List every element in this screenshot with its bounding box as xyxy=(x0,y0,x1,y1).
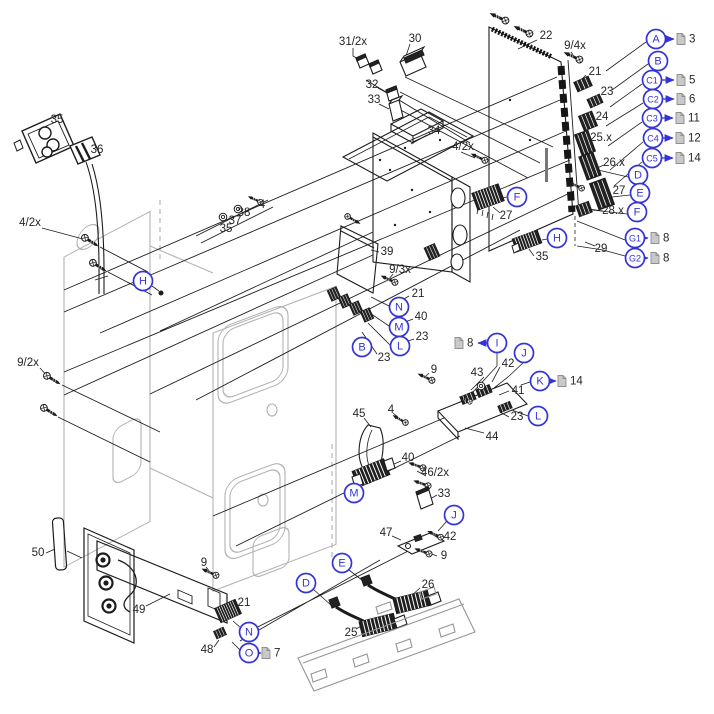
part-label-9-2x: 9/2x xyxy=(17,357,39,369)
part-label-4-2x: 4/2x xyxy=(19,217,41,229)
document-icon xyxy=(677,94,685,105)
callout-e[interactable]: E xyxy=(631,184,650,203)
callout-k[interactable]: K xyxy=(531,372,550,391)
callout-c4[interactable]: C4 xyxy=(644,129,663,148)
part-label-39: 39 xyxy=(381,246,394,258)
doc-page-number: 6 xyxy=(689,94,695,106)
callout-letter: N xyxy=(245,627,253,639)
callout-g1[interactable]: G1 xyxy=(626,229,645,248)
strip-50 xyxy=(52,518,67,571)
part-label-25: 25 xyxy=(345,627,358,639)
doc-page-number: 14 xyxy=(688,153,701,165)
callout-letter: A xyxy=(652,34,660,46)
doc-ref-page-11[interactable]: 11 xyxy=(662,113,700,125)
document-icon xyxy=(676,133,684,144)
doc-page-number: 8 xyxy=(663,233,669,245)
callout-letter: L xyxy=(397,341,403,353)
sensor-47-group xyxy=(398,529,444,558)
part-label-43: 43 xyxy=(471,367,484,379)
document-icon xyxy=(651,253,659,264)
doc-page-number: 8 xyxy=(467,338,473,350)
screw-9-2x-a xyxy=(42,371,62,387)
connector-21 xyxy=(574,76,592,91)
washer-42 xyxy=(477,382,485,390)
screw-9-2x-b xyxy=(39,403,59,419)
callout-c5[interactable]: C5 xyxy=(643,149,662,168)
part-label-27: 27 xyxy=(613,185,626,197)
part-label-26-x: 26.x xyxy=(603,157,625,169)
callout-m[interactable]: M xyxy=(390,318,409,337)
exploded-parts-diagram: 31/2x303233229/4x21232425.x26.x2728.x293… xyxy=(0,0,714,714)
part-label-23: 23 xyxy=(601,86,614,98)
callout-letter: J xyxy=(451,510,457,522)
part-label-24: 24 xyxy=(596,111,609,123)
callout-c1[interactable]: C1 xyxy=(643,71,662,90)
part-label-49: 49 xyxy=(133,604,146,616)
callout-m[interactable]: M xyxy=(345,484,364,503)
doc-page-number: 14 xyxy=(570,376,583,388)
part-label-9: 9 xyxy=(201,557,207,569)
electronics-box xyxy=(373,133,470,282)
callout-e[interactable]: E xyxy=(333,554,352,573)
doc-ref-page-5[interactable]: 5 xyxy=(662,75,695,87)
callout-d[interactable]: D xyxy=(297,574,316,593)
callout-letter: C5 xyxy=(646,154,658,164)
callout-letter: M xyxy=(394,322,403,334)
chassis-frame xyxy=(64,193,336,594)
doc-ref-page-8[interactable]: 8 xyxy=(645,253,669,265)
part-label-46-2x: 46/2x xyxy=(421,467,449,479)
part-label-21: 21 xyxy=(589,66,602,78)
part-label-48: 48 xyxy=(201,644,214,656)
callout-letter: C2 xyxy=(647,95,659,105)
callout-l[interactable]: L xyxy=(391,337,410,356)
callout-letter: B xyxy=(654,56,661,68)
doc-page-number: 3 xyxy=(689,34,695,46)
callout-a[interactable]: A xyxy=(647,30,666,49)
part-label-23: 23 xyxy=(511,411,524,423)
document-icon xyxy=(676,113,684,124)
callout-b[interactable]: B xyxy=(649,52,668,71)
doc-ref-page-8[interactable]: 8 xyxy=(455,338,488,350)
doc-ref-page-6[interactable]: 6 xyxy=(663,94,695,106)
part-label-27: 27 xyxy=(500,210,513,222)
connector-26x xyxy=(579,153,601,180)
doc-ref-page-14[interactable]: 14 xyxy=(662,153,701,165)
screw-22b xyxy=(514,24,534,38)
callout-letter: M xyxy=(349,488,358,500)
callout-letter: E xyxy=(338,558,345,570)
callout-letter: C4 xyxy=(647,134,659,144)
part-label-33: 33 xyxy=(438,488,451,500)
callout-letter: K xyxy=(536,376,544,388)
part-label-23: 23 xyxy=(416,331,429,343)
part-label-34: 34 xyxy=(428,125,441,137)
part-label-42: 42 xyxy=(444,531,457,543)
part-label-35: 35 xyxy=(51,114,64,126)
part-label-21: 21 xyxy=(412,288,425,300)
part-label-35: 35 xyxy=(220,223,233,235)
part-label-33: 33 xyxy=(368,94,381,106)
callout-h[interactable]: H xyxy=(134,272,153,291)
left-screws xyxy=(39,233,163,462)
part-label-35: 35 xyxy=(536,251,549,263)
callout-d[interactable]: D xyxy=(629,166,648,185)
part-label-47: 47 xyxy=(380,527,393,539)
callout-letter: G1 xyxy=(629,234,641,244)
callout-letter: J xyxy=(521,348,527,360)
callout-letter: D xyxy=(634,170,642,182)
part-label-26: 26 xyxy=(422,579,435,591)
doc-page-number: 12 xyxy=(688,133,701,145)
callout-o[interactable]: O xyxy=(240,644,259,663)
callout-letter: H xyxy=(139,276,147,288)
part-label-23: 23 xyxy=(378,352,391,364)
doc-page-number: 5 xyxy=(689,75,695,87)
document-icon xyxy=(677,34,685,45)
part-label-9-3x: 9/3x xyxy=(389,264,411,276)
callout-letter: G2 xyxy=(629,254,641,264)
callout-letter: F xyxy=(514,192,521,204)
part-label-9: 9 xyxy=(441,550,447,562)
cable-connector-35-36 xyxy=(14,114,108,294)
box-connector xyxy=(424,244,440,260)
callout-j[interactable]: J xyxy=(515,344,534,363)
callout-g2[interactable]: G2 xyxy=(626,249,645,268)
screw-4-2x-plate xyxy=(471,151,489,164)
part-label-45: 45 xyxy=(353,408,366,420)
part-label-40: 40 xyxy=(402,452,415,464)
part-label-42: 42 xyxy=(502,358,515,370)
doc-ref-page-3[interactable]: 3 xyxy=(666,34,695,46)
document-icon xyxy=(262,648,270,659)
doc-ref-page-7[interactable]: 7 xyxy=(259,648,280,660)
doc-ref-page-14[interactable]: 14 xyxy=(550,376,583,388)
document-icon xyxy=(676,153,684,164)
exploded-parts-diagram-page: 31/2x303233229/4x21232425.x26.x2728.x293… xyxy=(0,0,714,714)
doc-ref-page-12[interactable]: 12 xyxy=(663,133,701,145)
callout-letter: C3 xyxy=(646,114,658,124)
screw-22a xyxy=(490,11,510,25)
part-label-9-4x: 9/4x xyxy=(564,40,586,52)
callout-c3[interactable]: C3 xyxy=(643,109,662,128)
part-label-25-x: 25.x xyxy=(590,132,612,144)
part-label-9: 9 xyxy=(431,364,437,376)
connector-48 xyxy=(214,627,227,639)
callout-letter: N xyxy=(395,302,403,314)
part-label-21: 21 xyxy=(238,597,251,609)
part-label-4-2x: 4/2x xyxy=(452,141,474,153)
callout-c2[interactable]: C2 xyxy=(644,90,663,109)
doc-page-number: 11 xyxy=(688,113,700,125)
part-label-32: 32 xyxy=(366,79,379,91)
callout-f[interactable]: F xyxy=(628,203,647,222)
part-label-4: 4 xyxy=(388,404,395,416)
frame-rails xyxy=(64,77,574,641)
terminal-block xyxy=(298,587,475,691)
connector-26 xyxy=(393,590,431,613)
part-label-4: 4 xyxy=(259,199,266,211)
callout-j[interactable]: J xyxy=(445,506,464,525)
part-label-41: 41 xyxy=(512,385,525,397)
part-label-40: 40 xyxy=(415,311,428,323)
callout-h[interactable]: H xyxy=(548,229,567,248)
doc-ref-page-8[interactable]: 8 xyxy=(645,233,669,245)
callout-letter: E xyxy=(636,188,643,200)
callout-b[interactable]: B xyxy=(353,338,372,357)
document-icon xyxy=(677,75,685,86)
document-icon xyxy=(558,376,566,387)
part-label-50: 50 xyxy=(32,547,45,559)
screw-4-45 xyxy=(392,413,409,426)
callout-n[interactable]: N xyxy=(240,623,259,642)
doc-page-number: 7 xyxy=(274,648,280,660)
callout-letter: O xyxy=(245,648,254,660)
part-label-29: 29 xyxy=(595,243,608,255)
callout-letter: F xyxy=(634,207,641,219)
callout-letter: C1 xyxy=(646,76,658,86)
callout-letter: D xyxy=(302,578,310,590)
doc-page-number: 8 xyxy=(663,253,669,265)
part-label-44: 44 xyxy=(486,431,499,443)
washer-35 xyxy=(219,213,227,221)
screw-46-2x-b xyxy=(413,478,432,490)
callout-i[interactable]: I xyxy=(488,334,507,353)
part-label-30: 30 xyxy=(409,33,422,45)
callout-letter: I xyxy=(495,338,498,350)
connector-24 xyxy=(579,111,598,130)
callout-letter: H xyxy=(553,233,561,245)
callout-f[interactable]: F xyxy=(508,188,527,207)
document-icon xyxy=(455,338,463,349)
part-label-36: 36 xyxy=(91,144,104,156)
part-label-28-x: 28.x xyxy=(602,205,624,217)
callout-letter: L xyxy=(535,411,541,423)
part-label-31-2x: 31/2x xyxy=(339,36,367,48)
callout-n[interactable]: N xyxy=(390,298,409,317)
document-icon xyxy=(651,233,659,244)
callout-letter: B xyxy=(358,342,365,354)
connector-27-f xyxy=(472,184,504,210)
part-label-22: 22 xyxy=(540,30,553,42)
callout-l[interactable]: L xyxy=(529,407,548,426)
